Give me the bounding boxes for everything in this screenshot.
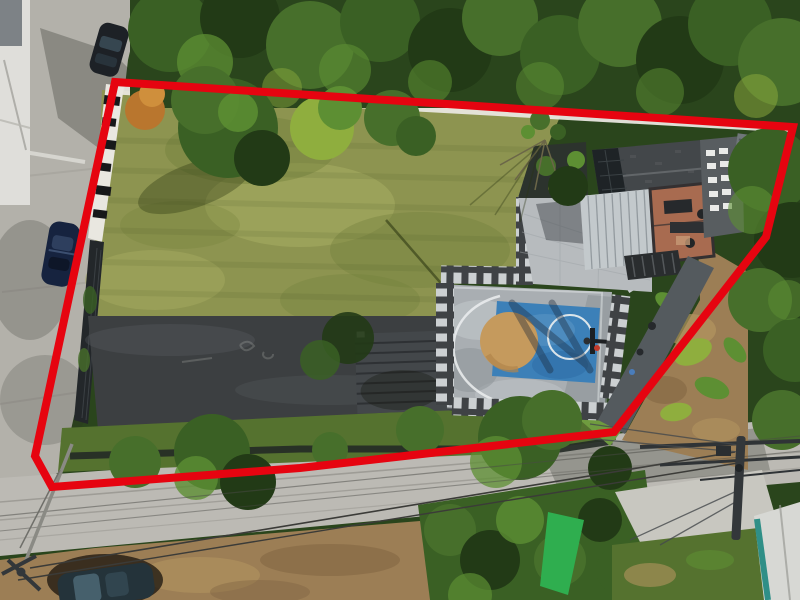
corner-building bbox=[0, 0, 30, 205]
aerial-photo bbox=[0, 0, 800, 600]
aerial-photo-canvas bbox=[0, 0, 800, 600]
